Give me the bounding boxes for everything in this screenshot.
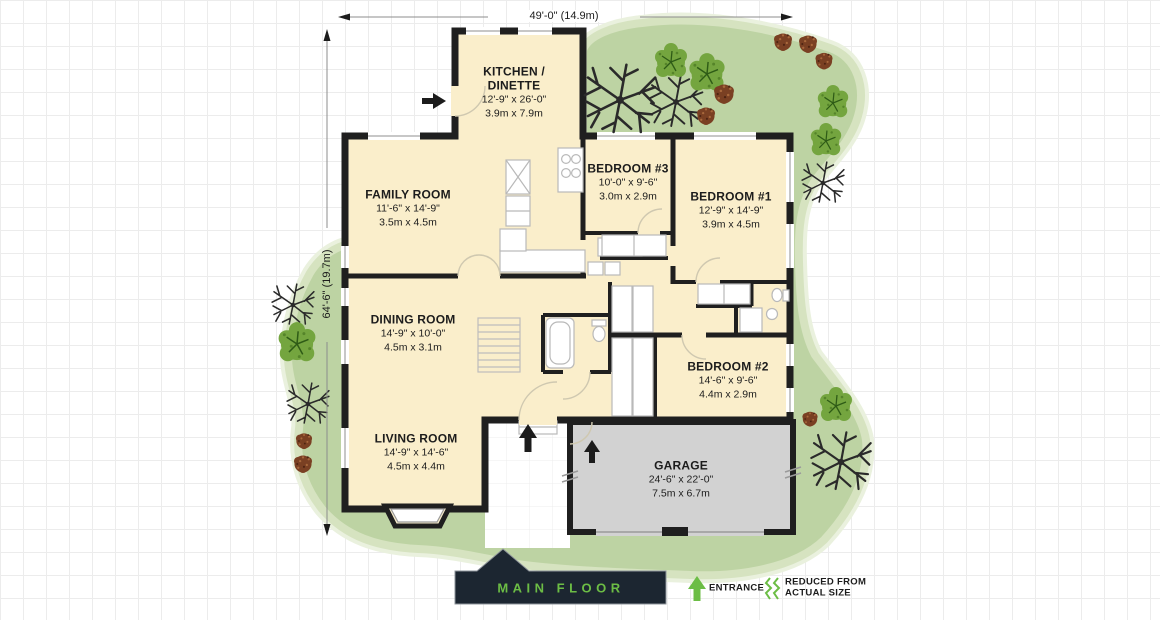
room-label-family-room: FAMILY ROOM 11'-6" x 14'-9" 3.5m x 4.5m	[365, 188, 451, 229]
width-dimension-label: 49'-0" (14.9m)	[524, 10, 605, 22]
side-door-opening	[451, 86, 460, 116]
floor-plan-drawing	[0, 0, 1160, 620]
kitchen-counter-corner	[500, 229, 526, 251]
garage-door-post	[662, 527, 688, 536]
room-label-bedroom-1: BEDROOM #1 12'-9" x 14'-9" 3.9m x 4.5m	[690, 190, 771, 231]
front-door-opening	[519, 416, 557, 425]
entrance-legend-label: ENTRANCE	[709, 582, 764, 593]
shower	[740, 308, 762, 332]
room-label-dining-room: DINING ROOM 14'-9" x 10'-0" 4.5m x 3.1m	[371, 313, 456, 354]
ensuite-toilet	[772, 289, 782, 302]
ensuite-toilet-tank	[783, 290, 789, 301]
room-label-living-room: LIVING ROOM 14'-9" x 14'-6" 4.5m x 4.4m	[375, 432, 458, 473]
height-dimension-label: 64'-6" (19.7m)	[321, 250, 333, 319]
room-label-garage: GARAGE 24'-6" x 22'-0" 7.5m x 6.7m	[649, 459, 714, 500]
ensuite-sink	[767, 309, 778, 320]
sheet-title: MAIN FLOOR	[497, 581, 624, 596]
bay-window-glass	[391, 509, 444, 522]
reduced-size-legend-label: REDUCED FROM ACTUAL SIZE	[785, 577, 866, 600]
kitchen-counter	[500, 250, 585, 272]
side-entrance-arrow-icon	[422, 93, 446, 109]
toilet	[593, 327, 605, 342]
hall-closet-door	[633, 286, 653, 332]
toilet-tank	[592, 320, 606, 326]
bedroom2-closet-door	[633, 338, 653, 416]
washer	[588, 262, 603, 275]
size-break-icon	[766, 578, 779, 599]
bedroom2-closet-door	[612, 338, 632, 416]
room-label-bedroom-2: BEDROOM #2 14'-6" x 9'-6" 4.4m x 2.9m	[687, 360, 768, 401]
room-label-kitchen-dinette: KITCHEN / DINETTE 12'-9" x 26'-0" 3.9m x…	[466, 64, 562, 119]
room-label-bedroom-3: BEDROOM #3 10'-0" x 9'-6" 3.0m x 2.9m	[587, 162, 668, 203]
dryer	[605, 262, 620, 275]
floor-plan-canvas: 49'-0" (14.9m) 64'-6" (19.7m) KITCHEN / …	[0, 0, 1160, 620]
hall-closet-door	[612, 286, 632, 332]
